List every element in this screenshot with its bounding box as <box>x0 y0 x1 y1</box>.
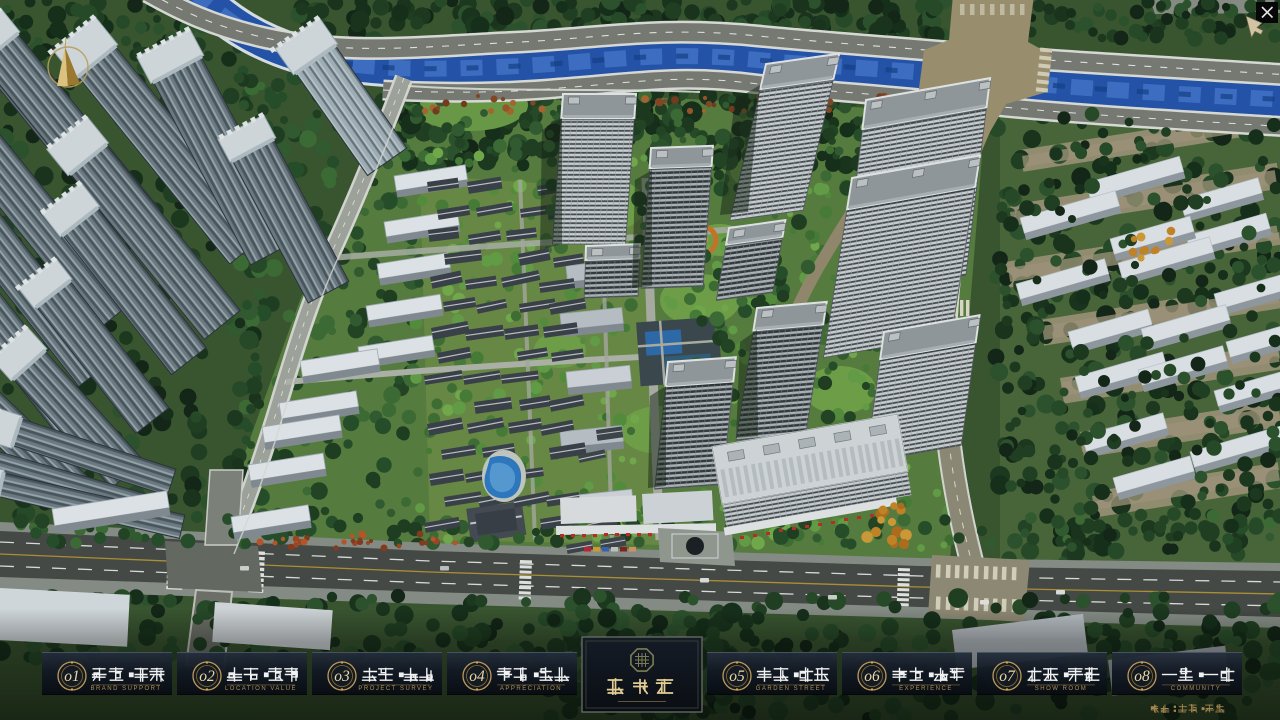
svg-text:COMMUNITY: COMMUNITY <box>1171 686 1222 692</box>
svg-text:o4: o4 <box>469 668 485 685</box>
svg-text:o5: o5 <box>729 668 745 685</box>
svg-text:LOCATION VALUE: LOCATION VALUE <box>225 686 297 692</box>
svg-text:EXPERIENCE: EXPERIENCE <box>899 686 953 692</box>
svg-text:o7: o7 <box>999 668 1016 685</box>
svg-text:BRAND SUPPORT: BRAND SUPPORT <box>90 686 161 692</box>
svg-text:o8: o8 <box>1134 668 1150 685</box>
svg-text:o3: o3 <box>334 668 350 685</box>
svg-text:PROJECT SURVEY: PROJECT SURVEY <box>358 686 433 692</box>
svg-text:SHOW ROOM: SHOW ROOM <box>1035 686 1088 692</box>
svg-text:APPRECIATION: APPRECIATION <box>500 686 562 692</box>
svg-text:GARDEN STREET: GARDEN STREET <box>756 686 827 692</box>
svg-text:o2: o2 <box>199 668 215 685</box>
svg-text:o1: o1 <box>64 668 80 685</box>
svg-text:o6: o6 <box>864 668 880 685</box>
